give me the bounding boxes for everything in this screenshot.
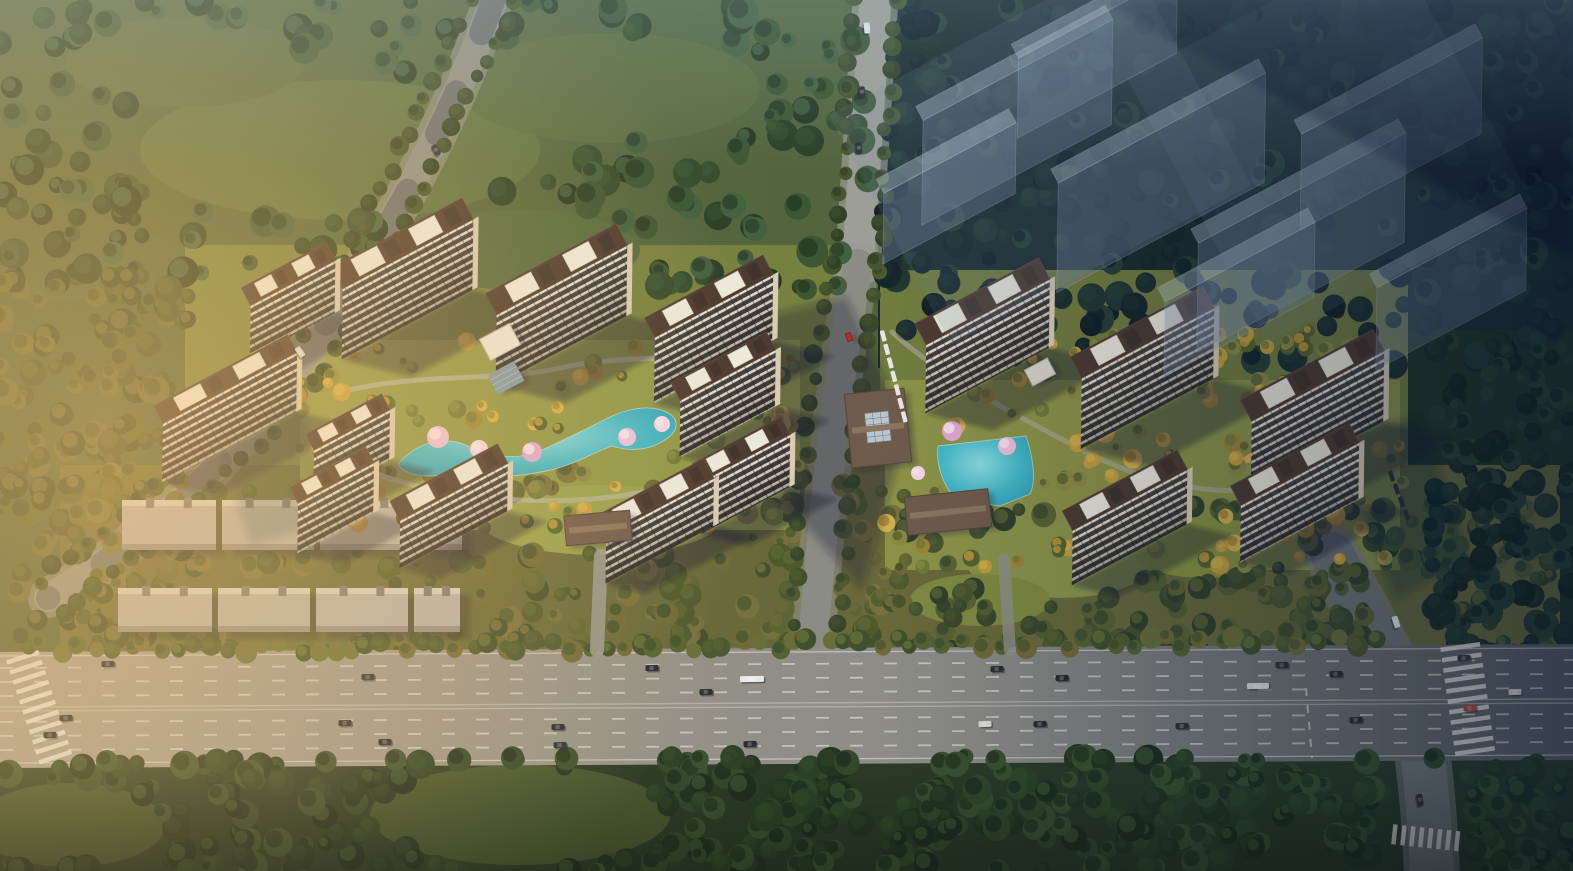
aerial-rendering-stage: Aerial rendering of residential developm…	[0, 0, 1573, 871]
lighting-overlays	[0, 0, 1573, 871]
aerial-site-rendering	[0, 0, 1573, 871]
sky-haze-overlay	[0, 0, 1573, 170]
bottom-vignette-overlay	[0, 770, 1573, 871]
